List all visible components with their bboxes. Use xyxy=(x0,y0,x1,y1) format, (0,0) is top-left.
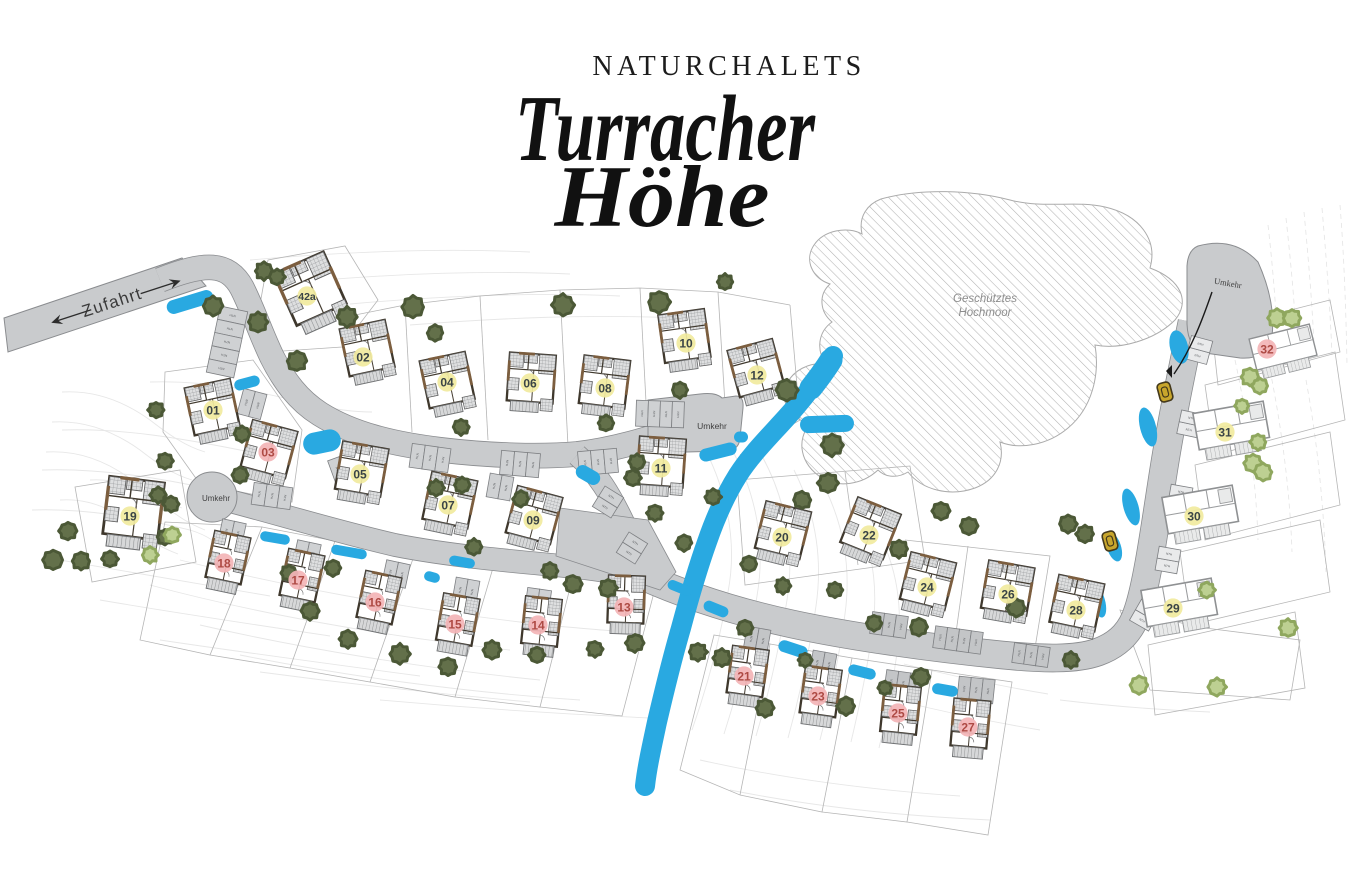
svg-text:NTH: NTH xyxy=(1040,653,1045,660)
svg-text:30: 30 xyxy=(1187,509,1201,523)
svg-text:09: 09 xyxy=(526,513,540,527)
svg-text:07: 07 xyxy=(441,498,455,512)
svg-text:11: 11 xyxy=(655,461,668,475)
svg-text:NTH: NTH xyxy=(664,411,668,417)
svg-text:42a: 42a xyxy=(298,291,316,303)
svg-text:NTH: NTH xyxy=(531,462,536,468)
svg-text:NTH: NTH xyxy=(640,410,644,416)
svg-text:NTH: NTH xyxy=(609,458,614,464)
svg-text:NTH: NTH xyxy=(652,411,656,417)
svg-text:31: 31 xyxy=(1218,425,1232,439)
svg-text:29: 29 xyxy=(1166,601,1180,615)
svg-text:28: 28 xyxy=(1069,603,1083,617)
svg-text:NTH: NTH xyxy=(505,460,510,466)
svg-text:26: 26 xyxy=(1001,587,1015,601)
svg-text:Umkehr: Umkehr xyxy=(202,494,230,503)
svg-text:NTH: NTH xyxy=(986,688,991,695)
svg-text:08: 08 xyxy=(598,381,612,395)
svg-text:25: 25 xyxy=(891,706,905,720)
svg-text:18: 18 xyxy=(217,556,231,570)
svg-text:NTH: NTH xyxy=(415,453,420,460)
svg-text:02: 02 xyxy=(356,350,370,364)
svg-text:10: 10 xyxy=(679,336,693,350)
svg-text:20: 20 xyxy=(775,530,789,544)
svg-text:NTH: NTH xyxy=(270,493,275,500)
svg-text:NTH: NTH xyxy=(974,687,979,694)
svg-text:19: 19 xyxy=(123,509,137,523)
svg-text:15: 15 xyxy=(448,617,462,631)
svg-text:NTH: NTH xyxy=(596,459,601,465)
svg-text:17: 17 xyxy=(291,573,305,587)
svg-text:NTH: NTH xyxy=(898,623,903,630)
svg-text:Geschütztes: Geschütztes xyxy=(953,293,1017,305)
svg-text:NTH: NTH xyxy=(962,685,967,692)
svg-text:24: 24 xyxy=(920,580,934,594)
svg-text:NTH: NTH xyxy=(428,455,433,462)
svg-text:05: 05 xyxy=(353,467,367,481)
svg-text:12: 12 xyxy=(750,368,764,382)
svg-text:NTH: NTH xyxy=(938,634,943,641)
svg-text:13: 13 xyxy=(617,600,631,614)
svg-text:Höhe: Höhe xyxy=(553,149,769,246)
svg-text:01: 01 xyxy=(206,403,220,417)
svg-text:04: 04 xyxy=(440,375,454,389)
svg-text:Umkehr: Umkehr xyxy=(697,421,727,431)
svg-text:23: 23 xyxy=(811,689,825,703)
svg-text:NTH: NTH xyxy=(440,456,445,463)
svg-text:Hochmoor: Hochmoor xyxy=(958,307,1012,319)
svg-text:03: 03 xyxy=(261,445,275,459)
svg-text:NTH: NTH xyxy=(1017,650,1022,657)
svg-text:NTH: NTH xyxy=(518,461,523,467)
svg-text:NTH: NTH xyxy=(973,639,978,646)
svg-text:14: 14 xyxy=(531,618,545,632)
svg-text:NTH: NTH xyxy=(257,491,262,498)
svg-text:16: 16 xyxy=(368,595,382,609)
svg-text:22: 22 xyxy=(862,528,876,542)
svg-text:NTH: NTH xyxy=(962,638,967,645)
svg-text:NTH: NTH xyxy=(676,411,680,417)
svg-text:NTH: NTH xyxy=(887,622,892,629)
svg-text:NTH: NTH xyxy=(950,636,955,643)
svg-text:NTH: NTH xyxy=(282,494,287,501)
svg-text:27: 27 xyxy=(961,720,975,734)
svg-text:06: 06 xyxy=(523,376,537,390)
svg-text:NTH: NTH xyxy=(1029,652,1034,659)
svg-text:21: 21 xyxy=(737,669,751,683)
svg-text:32: 32 xyxy=(1260,342,1274,356)
